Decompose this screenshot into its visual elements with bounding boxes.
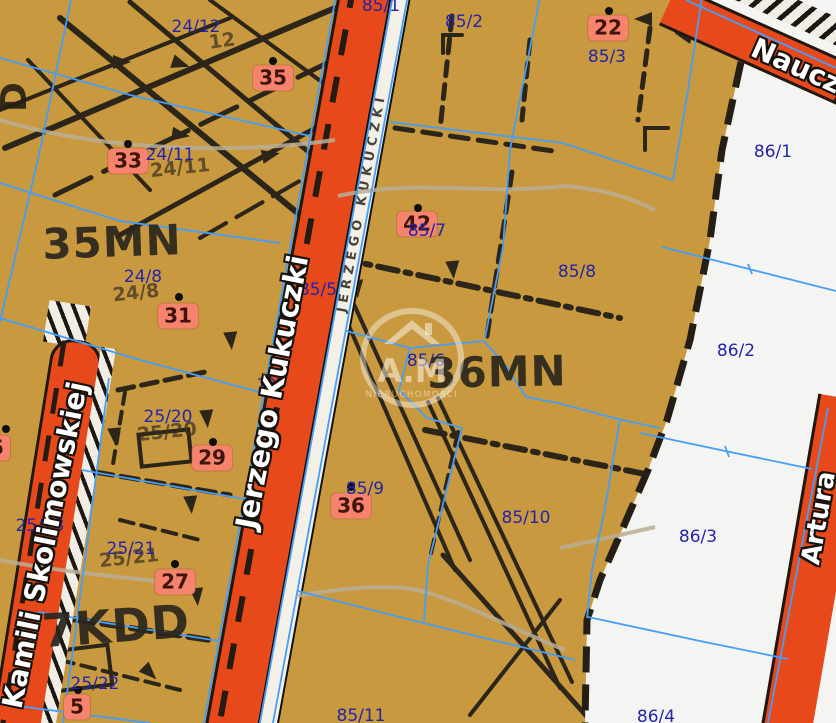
address-badge[interactable]: 27 [155,570,195,595]
parcel-label: 25/20 [144,407,193,427]
parcel-label: 85/8 [558,262,596,282]
map-canvas[interactable]: D JERZEGO KUKUCZKI 1224/1124/825/2025/21 [0,0,836,723]
zone-label: 7KDD [40,594,191,658]
watermark-subtitle: NIERUCHOMOŚCI [366,388,459,400]
address-point-dot [171,560,179,568]
watermark: A.M NIERUCHOMOŚCI [352,304,472,414]
address-point-dot [605,7,613,15]
street-name-label: Jerzego Kukuczki [229,252,315,531]
street-name-label: Nauczy [746,31,836,107]
address-point-dot [414,204,422,212]
address-point-dot [175,293,183,301]
parcel-label: 86/2 [717,341,755,361]
parcel-label: 85/11 [337,706,386,723]
address-badge[interactable]: 22 [588,16,628,41]
watermark-brand: A.M [377,352,446,390]
parcel-label: 24/12 [172,17,221,37]
address-badge[interactable]: 29 [192,446,232,471]
address-badge[interactable]: 5 [0,436,10,461]
parcel-label: 85/9 [346,479,384,499]
parcel-label: 85/1 [362,0,400,16]
address-point-dot [269,57,277,65]
zone-label: 35MN [41,215,182,269]
parcel-label: 24/8 [124,267,162,287]
parcel-label: 85/7 [408,221,446,241]
parcel-label: 86/4 [637,707,675,723]
address-badge[interactable]: 33 [108,149,148,174]
street-name-label: Kamili Skolimowskiej [0,379,94,711]
parcel-label: 85/2 [445,12,483,32]
parcel-label: 25/21 [107,539,156,559]
parcel-label: 85/3 [588,47,626,67]
parcel-label: 86/3 [679,527,717,547]
street-name-label: Artura [796,469,836,567]
address-badge[interactable]: 35 [253,66,293,91]
parcel-label: 86/1 [754,142,792,162]
parcel-label: 24/11 [146,145,195,165]
address-point-dot [2,425,10,433]
parcel-label: 25/22 [71,674,120,694]
address-badge[interactable]: 31 [158,304,198,329]
parcel-label: 85/10 [502,508,551,528]
address-point-dot [209,438,217,446]
house-icon [384,320,440,344]
address-badge[interactable]: 5 [64,695,90,720]
address-point-dot [124,140,132,148]
